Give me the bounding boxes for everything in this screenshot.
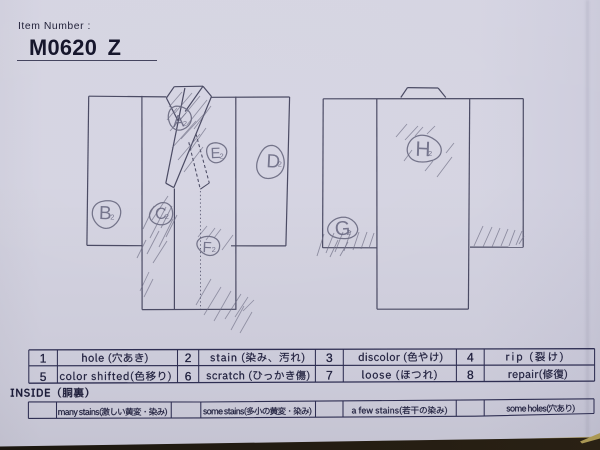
svg-text:2: 2: [110, 213, 114, 222]
svg-text:2: 2: [183, 119, 187, 128]
svg-text:2: 2: [185, 351, 192, 365]
svg-text:F: F: [202, 239, 212, 256]
svg-text:2: 2: [347, 228, 351, 237]
svg-text:3: 3: [326, 351, 333, 365]
svg-text:2: 2: [165, 212, 169, 221]
svg-text:4: 4: [467, 350, 474, 364]
svg-text:6: 6: [185, 369, 192, 383]
svg-text:5: 5: [40, 370, 47, 384]
svg-text:1: 1: [40, 352, 47, 366]
svg-text:2: 2: [428, 149, 432, 158]
svg-text:2: 2: [220, 152, 224, 161]
svg-text:7: 7: [326, 369, 333, 383]
svg-text:2: 2: [212, 245, 216, 254]
svg-text:2: 2: [278, 160, 282, 169]
svg-text:8: 8: [467, 368, 474, 382]
